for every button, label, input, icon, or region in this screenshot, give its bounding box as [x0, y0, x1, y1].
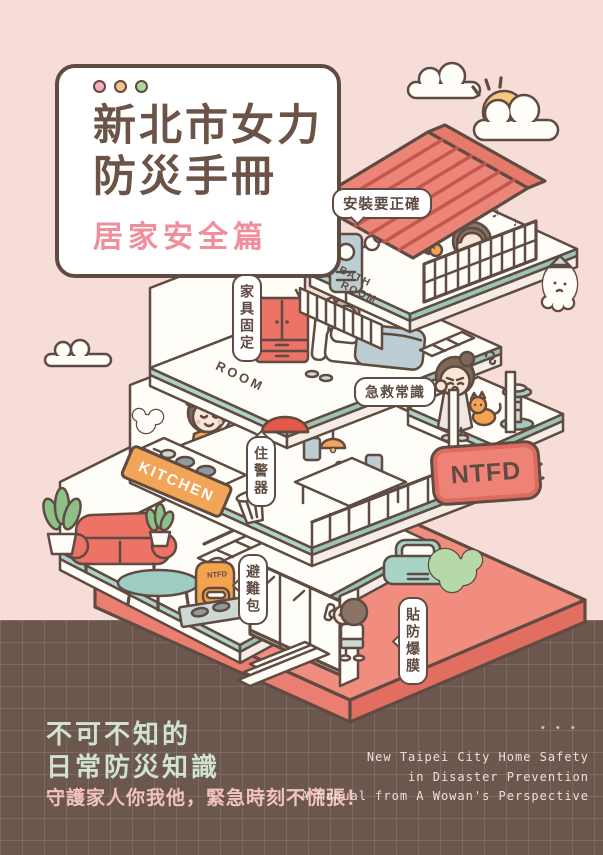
- pink-dot-icon: [93, 80, 106, 93]
- footer-heading-line2: 日常防災知識: [46, 747, 220, 784]
- green-dot-icon: [135, 80, 148, 93]
- card-dots: [93, 80, 337, 93]
- callout-furniture-anchoring: 家具固定: [232, 274, 262, 362]
- slipper-icon: [306, 371, 318, 377]
- footer-english-line1: New Taipei City Home Safety: [301, 748, 589, 768]
- poster: 新北市女力 防災手冊 居家安全篇 安裝要正確 家具固定 急救常識 住警器 避難包…: [0, 0, 603, 855]
- slipper-icon: [320, 375, 332, 381]
- callout-smoke-alarm: 住警器: [246, 436, 276, 507]
- footer-english-line3: A Manual from A Wowan's Perspective: [301, 787, 589, 807]
- poster-title-line1: 新北市女力: [93, 101, 337, 152]
- callout-blast-film: 貼防爆膜: [398, 597, 428, 685]
- footer-english-line2: in Disaster Prevention: [301, 768, 589, 788]
- ntfd-hanging-sign: NTFD: [429, 439, 543, 507]
- callout-first-aid: 急救常識: [354, 377, 436, 407]
- callout-go-bag: 避難包: [238, 554, 268, 625]
- footer-english-title: New Taipei City Home Safety in Disaster …: [301, 748, 589, 807]
- poster-subtitle: 居家安全篇: [93, 212, 337, 256]
- poster-title-line2: 防災手冊: [93, 152, 337, 203]
- footer-heading-line1: 不可不知的: [46, 714, 191, 751]
- cloud-icon: [408, 63, 480, 98]
- callout-install: 安裝要正確: [332, 188, 432, 219]
- footer-dots: • • •: [541, 722, 579, 734]
- cloud-icon: [45, 340, 111, 366]
- title-card: 新北市女力 防災手冊 居家安全篇: [55, 64, 341, 278]
- orange-dot-icon: [114, 80, 127, 93]
